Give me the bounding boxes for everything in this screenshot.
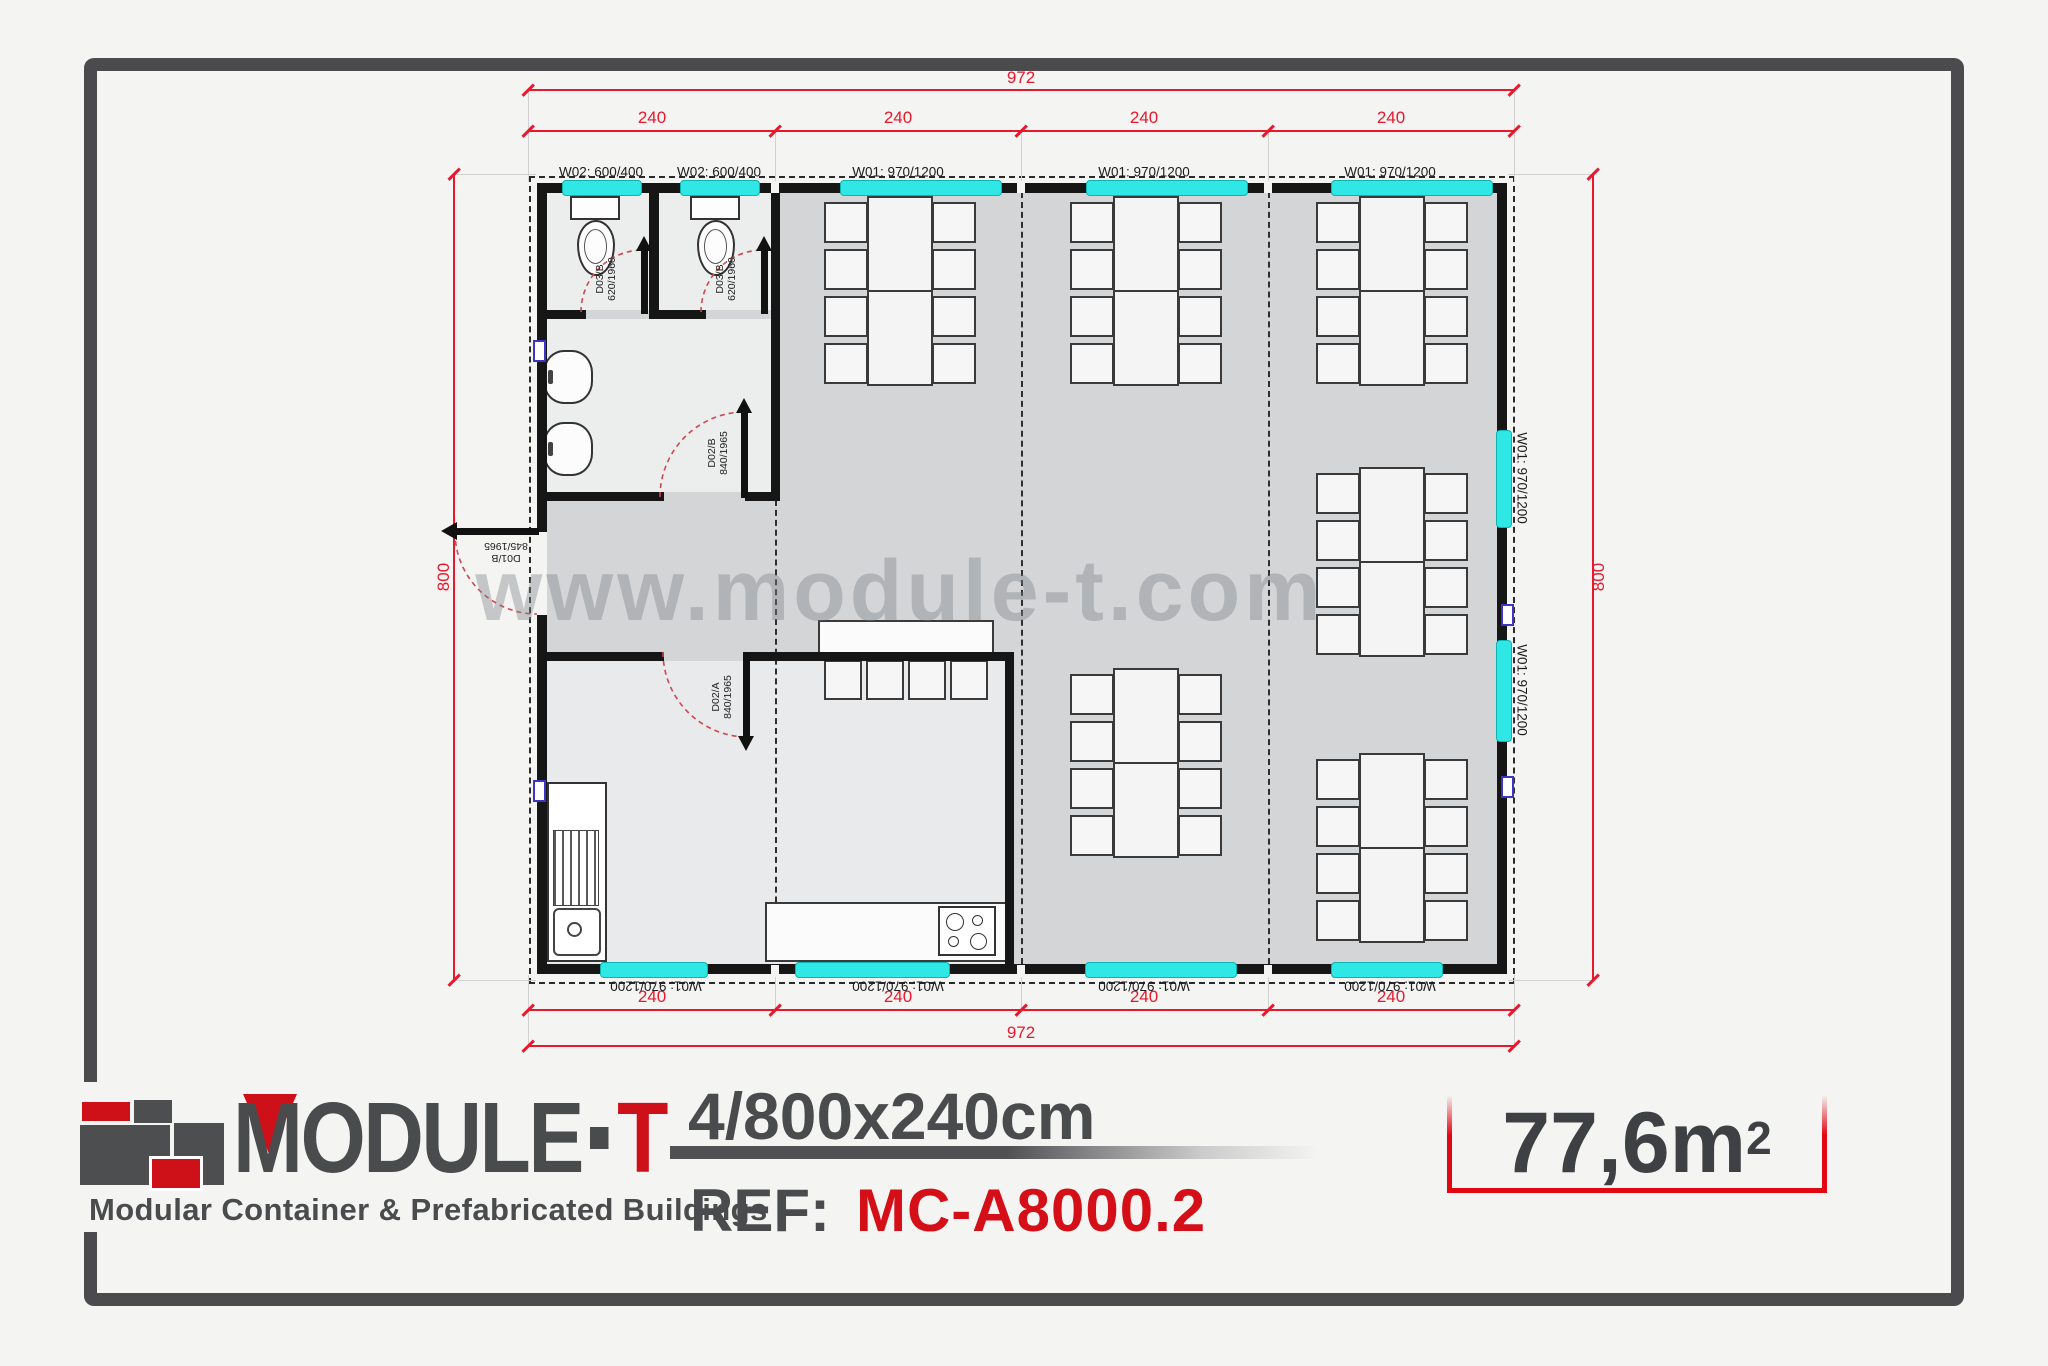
chair <box>1424 343 1468 384</box>
chair <box>1178 815 1222 856</box>
door-label: D02/B840/1965 <box>706 431 730 475</box>
chair <box>1178 674 1222 715</box>
dim-total-top: 972 <box>1007 68 1035 88</box>
module-joint-line <box>775 500 777 962</box>
spec-underline <box>670 1146 1318 1159</box>
chair <box>1070 674 1114 715</box>
door-arrow-icon <box>736 398 752 413</box>
chair <box>1178 296 1222 337</box>
extension-line <box>1508 174 1592 175</box>
chair <box>1316 249 1360 290</box>
window-icon <box>1496 640 1512 742</box>
module-joint-notch <box>1017 965 1025 977</box>
chair <box>1316 520 1360 561</box>
extension-line <box>775 975 776 1009</box>
toilet-tank <box>690 196 740 220</box>
door-leaf <box>741 412 748 498</box>
dim-segment: 240 <box>884 108 912 128</box>
extension-line <box>1268 131 1269 181</box>
module-joint-notch <box>1017 181 1025 193</box>
table <box>1359 847 1425 943</box>
window-icon <box>1331 180 1493 196</box>
service-socket <box>1501 776 1514 798</box>
window-label: W01: 970/1200 <box>1515 432 1530 524</box>
chair <box>1070 249 1114 290</box>
door-label: D02/A840/1965 <box>710 675 734 719</box>
extension-line <box>528 90 529 182</box>
chair <box>1070 768 1114 809</box>
window-label: W01: 970/1200 <box>1515 644 1530 736</box>
door-arrow-icon <box>441 522 457 540</box>
wall <box>1005 652 1014 974</box>
chair <box>1424 806 1468 847</box>
window-icon <box>1496 430 1512 528</box>
chair <box>824 296 868 337</box>
floor-plan-page: www.module-t.com W02: 600/400 W02: 600/4… <box>0 0 2048 1366</box>
module-joint-notch <box>771 965 779 977</box>
stool <box>950 660 988 700</box>
chair <box>1316 759 1360 800</box>
chair <box>1178 249 1222 290</box>
window-label: W01: 970/1200 <box>1098 165 1190 180</box>
chair <box>1178 343 1222 384</box>
chair <box>1178 768 1222 809</box>
window-icon <box>1085 962 1237 978</box>
table <box>1113 668 1179 764</box>
window-icon <box>600 962 708 978</box>
sink-icon <box>543 350 593 404</box>
extension-line <box>1514 90 1515 182</box>
window-label: W02: 600/400 <box>677 165 761 180</box>
chair <box>932 202 976 243</box>
door-leaf <box>641 250 648 314</box>
chair <box>1316 567 1360 608</box>
chair <box>1424 853 1468 894</box>
wall <box>546 310 586 319</box>
dim-segment: 240 <box>1377 108 1405 128</box>
chair <box>1424 296 1468 337</box>
toilet-tank <box>570 196 620 220</box>
ref-value: MC-A8000.2 <box>856 1177 1206 1244</box>
chair <box>1070 721 1114 762</box>
stool <box>824 660 862 700</box>
service-socket <box>533 780 546 802</box>
extension-line <box>454 174 536 175</box>
dimension-line <box>528 89 1514 91</box>
wall <box>771 183 780 497</box>
chair <box>1424 249 1468 290</box>
stove-icon <box>938 906 996 956</box>
chair <box>1316 296 1360 337</box>
door-label: D01/B845/1965 <box>484 540 528 564</box>
chair <box>932 296 976 337</box>
table <box>867 196 933 292</box>
chair <box>824 202 868 243</box>
chair <box>1316 473 1360 514</box>
window-icon <box>840 180 1002 196</box>
wall <box>537 492 664 501</box>
ref-label: REF: <box>690 1177 830 1244</box>
chair <box>1424 473 1468 514</box>
chair <box>824 343 868 384</box>
chair <box>932 343 976 384</box>
logo-wordmark: MODULET <box>233 1088 666 1188</box>
window-label: W01: 970/1200 <box>610 979 702 994</box>
extension-line <box>1268 975 1269 1009</box>
door-arrow-icon <box>738 736 754 751</box>
door-label: D03/B620/1960 <box>594 257 618 301</box>
dim-total-bottom: 972 <box>1007 1023 1035 1043</box>
wall <box>1497 183 1507 974</box>
door-arrow-icon <box>756 236 772 251</box>
chair <box>824 249 868 290</box>
extension-line <box>1021 975 1022 1009</box>
area-badge: 77,6m2 <box>1447 1092 1827 1193</box>
window-label: W01: 970/1200 <box>1344 165 1436 180</box>
window-icon <box>1331 962 1443 978</box>
service-socket <box>1501 604 1514 626</box>
chair <box>1316 343 1360 384</box>
table <box>1359 196 1425 292</box>
chair <box>1070 202 1114 243</box>
service-socket <box>533 340 546 362</box>
module-joint-notch <box>1264 181 1272 193</box>
window-label: W01: 970/1200 <box>1098 979 1190 994</box>
window-label: W02: 600/400 <box>559 165 643 180</box>
wall <box>747 652 1014 661</box>
chair <box>1424 759 1468 800</box>
dimension-line <box>453 174 455 980</box>
chair <box>1316 853 1360 894</box>
stool <box>908 660 946 700</box>
wall <box>649 310 706 319</box>
module-joint-line <box>1268 192 1270 964</box>
kitchen-sink-unit <box>547 782 607 962</box>
sink-icon <box>543 422 593 476</box>
logo-mark-icon <box>80 1100 228 1185</box>
extension-line <box>775 131 776 181</box>
module-joint-notch <box>771 181 779 193</box>
table <box>1359 290 1425 386</box>
extension-line <box>1508 980 1592 981</box>
dim-segment: 240 <box>638 108 666 128</box>
extension-line <box>454 980 536 981</box>
chair <box>932 249 976 290</box>
plan-size-label: 4/800x240cm <box>688 1078 1095 1154</box>
door-label: D03/B620/1960 <box>714 257 738 301</box>
drainboard-icon <box>553 830 599 906</box>
table <box>1113 290 1179 386</box>
chair <box>1178 202 1222 243</box>
chair <box>1070 296 1114 337</box>
chair <box>1316 614 1360 655</box>
dimension-line <box>528 1045 1514 1047</box>
window-label: W01: 970/1200 <box>852 979 944 994</box>
chair <box>1424 202 1468 243</box>
chair <box>1316 202 1360 243</box>
chair <box>1424 900 1468 941</box>
table <box>1113 762 1179 858</box>
table <box>867 290 933 386</box>
faucet-icon <box>567 922 582 937</box>
chair <box>1316 900 1360 941</box>
chair <box>1178 721 1222 762</box>
door-leaf <box>761 250 768 314</box>
window-icon <box>1086 180 1248 196</box>
stool <box>866 660 904 700</box>
dim-segment: 240 <box>1130 108 1158 128</box>
wall <box>537 652 664 661</box>
table <box>1359 753 1425 849</box>
door-leaf <box>743 652 750 738</box>
entrance-opening <box>537 532 547 615</box>
table <box>1113 196 1179 292</box>
wall <box>745 492 780 501</box>
window-label: W01: 970/1200 <box>852 165 944 180</box>
chair <box>1316 806 1360 847</box>
chair <box>1070 343 1114 384</box>
logo-tagline: Modular Container & Prefabricated Buildi… <box>89 1192 768 1228</box>
window-icon <box>562 180 642 196</box>
chair <box>1424 520 1468 561</box>
dim-total-left: 800 <box>434 563 454 591</box>
door-arrow-icon <box>636 236 652 251</box>
dimension-line <box>1592 174 1594 980</box>
chair <box>1424 614 1468 655</box>
table <box>1359 467 1425 563</box>
logo-hyphen-icon <box>590 1127 608 1149</box>
entrance-door-leaf <box>455 528 539 535</box>
window-icon <box>795 962 950 978</box>
bar-counter <box>818 620 994 656</box>
module-joint-notch <box>1264 965 1272 977</box>
window-icon <box>680 180 760 196</box>
chair <box>1424 567 1468 608</box>
chair <box>1070 815 1114 856</box>
reference-row: REF:MC-A8000.2 <box>690 1176 1206 1245</box>
window-label: W01: 970/1200 <box>1344 979 1436 994</box>
extension-line <box>1021 131 1022 181</box>
module-joint-line <box>1021 192 1023 964</box>
table <box>1359 561 1425 657</box>
